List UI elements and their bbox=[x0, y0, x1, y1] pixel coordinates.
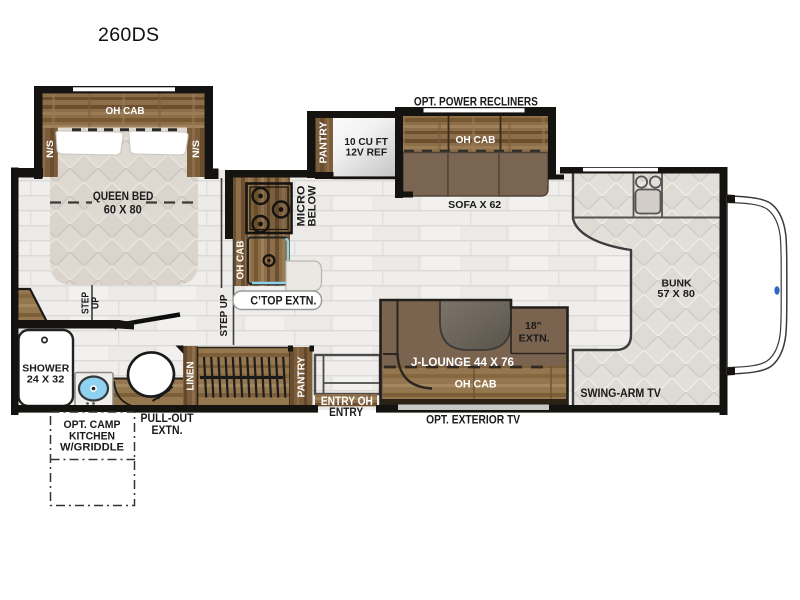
svg-text:BUNK: BUNK bbox=[662, 279, 693, 290]
svg-text:OPT. CAMP: OPT. CAMP bbox=[64, 419, 121, 431]
svg-text:SOFA X 62: SOFA X 62 bbox=[448, 200, 501, 211]
svg-text:SWING-ARM TV: SWING-ARM TV bbox=[580, 386, 661, 400]
svg-text:10 CU FT: 10 CU FT bbox=[344, 137, 388, 148]
svg-text:OPT. EXTERIOR TV: OPT. EXTERIOR TV bbox=[426, 413, 521, 427]
svg-text:N/S: N/S bbox=[191, 139, 202, 158]
svg-text:LINEN: LINEN bbox=[185, 362, 196, 391]
svg-text:SHOWER: SHOWER bbox=[22, 364, 69, 375]
svg-text:18": 18" bbox=[525, 321, 542, 332]
svg-text:OH CAB: OH CAB bbox=[455, 379, 497, 391]
svg-text:C’TOP EXTN.: C’TOP EXTN. bbox=[250, 295, 316, 307]
svg-text:N/S: N/S bbox=[45, 139, 56, 158]
svg-text:OH CAB: OH CAB bbox=[456, 134, 496, 146]
svg-text:260DS: 260DS bbox=[98, 24, 159, 46]
svg-text:W/GRIDDLE: W/GRIDDLE bbox=[60, 442, 124, 454]
svg-text:ENTRY: ENTRY bbox=[329, 405, 363, 419]
svg-text:24 X 32: 24 X 32 bbox=[27, 375, 65, 386]
svg-text:STEP UP: STEP UP bbox=[219, 294, 230, 336]
svg-text:EXTN.: EXTN. bbox=[152, 425, 183, 437]
svg-text:OPT. POWER RECLINERS: OPT. POWER RECLINERS bbox=[414, 94, 538, 108]
svg-text:60 X 80: 60 X 80 bbox=[104, 203, 142, 217]
svg-text:PULL-OUT: PULL-OUT bbox=[141, 413, 194, 425]
svg-text:57 X 80: 57 X 80 bbox=[657, 289, 695, 300]
svg-text:J-LOUNGE 44 X 76: J-LOUNGE 44 X 76 bbox=[411, 355, 514, 369]
svg-text:EXTN.: EXTN. bbox=[519, 334, 550, 345]
svg-text:OH CAB: OH CAB bbox=[106, 106, 145, 117]
svg-text:PANTRY: PANTRY bbox=[296, 356, 307, 397]
svg-text:OH CAB: OH CAB bbox=[235, 241, 246, 280]
svg-text:12V REF: 12V REF bbox=[346, 148, 388, 159]
svg-text:UP: UP bbox=[91, 297, 102, 309]
svg-text:PANTRY: PANTRY bbox=[318, 122, 330, 164]
svg-text:QUEEN BED: QUEEN BED bbox=[93, 189, 154, 203]
svg-text:BELOW: BELOW bbox=[307, 185, 319, 227]
